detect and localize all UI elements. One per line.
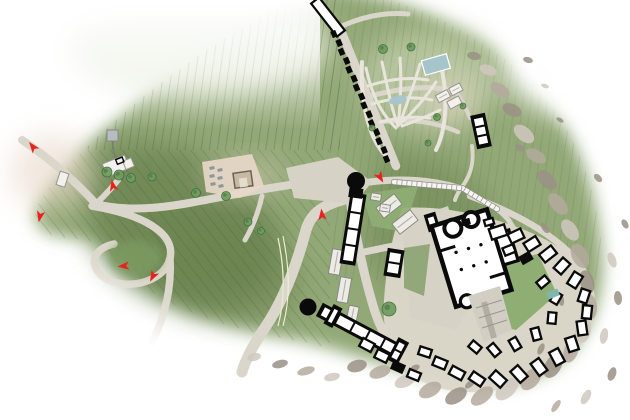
rock-outcrop [346, 358, 368, 375]
tree [407, 43, 415, 51]
rock-outcrop [599, 327, 610, 344]
rock-outcrop [271, 358, 288, 370]
rotunda-neck [348, 187, 363, 199]
rock-outcrop [606, 251, 619, 269]
village-building [548, 312, 557, 324]
courtyard-tree [382, 302, 396, 316]
site-plan-stage [0, 0, 630, 420]
village-building [531, 327, 542, 341]
tree [127, 174, 136, 183]
roofed-building [380, 204, 391, 212]
rock-outcrop [613, 291, 622, 306]
tree [192, 189, 201, 198]
tree [460, 103, 466, 109]
farm-courtyard-building [233, 171, 253, 188]
site-plan-map [0, 0, 630, 420]
warm-soil-patch-west [10, 134, 94, 210]
rock-outcrop [620, 218, 630, 230]
tree [148, 173, 156, 181]
rock-outcrop [296, 365, 316, 378]
tree [102, 167, 112, 177]
tree [222, 192, 231, 201]
village-building [484, 218, 494, 226]
tree [244, 218, 252, 226]
rock-outcrop [606, 366, 618, 382]
tree [369, 125, 375, 131]
tree [114, 170, 124, 180]
rock-outcrop [579, 388, 594, 406]
tree [425, 140, 431, 146]
village-building [582, 305, 592, 319]
tree [258, 228, 265, 235]
switchback-knoll [110, 240, 162, 276]
room [387, 263, 399, 274]
rock-outcrop [550, 399, 563, 414]
village-building [577, 320, 588, 335]
tree [434, 114, 441, 121]
rock-outcrop [592, 172, 603, 183]
rock-outcrop [323, 371, 340, 382]
bottom-fade [0, 350, 210, 420]
top-fade [0, 0, 320, 130]
bastion-tower [300, 299, 317, 316]
tree [379, 45, 388, 54]
roofed-building [371, 193, 382, 201]
room [389, 252, 401, 263]
